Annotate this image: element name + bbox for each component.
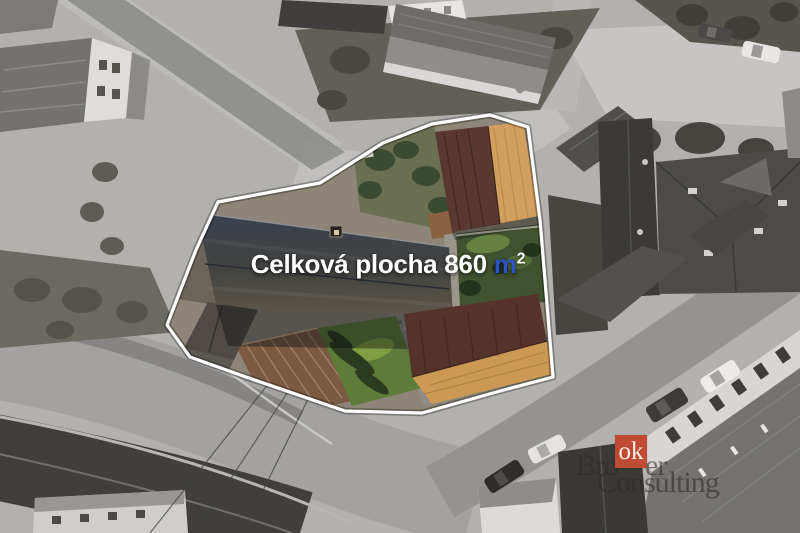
brand-ok-badge: ok xyxy=(615,435,647,468)
listing-photo: Celková plocha 860m2 Brooker Consulting xyxy=(0,0,800,533)
building-top-left xyxy=(0,38,150,132)
area-exponent: 2 xyxy=(517,250,526,267)
area-unit: m xyxy=(494,249,517,279)
brand-line2: Consulting xyxy=(597,468,719,498)
area-caption: Celková plocha 860m2 xyxy=(251,249,525,280)
area-caption-text: Celková plocha 860 xyxy=(251,249,487,279)
barn-upper xyxy=(435,122,541,240)
chimney xyxy=(330,226,342,237)
brand-watermark: Brooker Consulting xyxy=(576,448,719,498)
brand-ok-text: ok xyxy=(619,439,644,464)
